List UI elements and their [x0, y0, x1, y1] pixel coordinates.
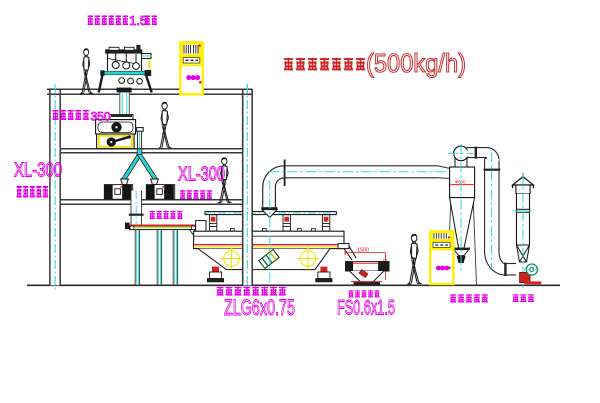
svg-text:(500kg/h): (500kg/h) — [366, 48, 466, 78]
svg-text:Φ600: Φ600 — [455, 180, 467, 185]
svg-text:1.5: 1.5 — [129, 13, 147, 28]
svg-text:XL-300: XL-300 — [14, 160, 62, 182]
svg-text:XL-300: XL-300 — [178, 164, 225, 186]
svg-text:FS0.6x1.5: FS0.6x1.5 — [337, 297, 395, 320]
svg-text:1500: 1500 — [357, 247, 369, 253]
svg-text:ZLG6x0.75: ZLG6x0.75 — [224, 295, 295, 320]
svg-text:350: 350 — [91, 110, 111, 124]
